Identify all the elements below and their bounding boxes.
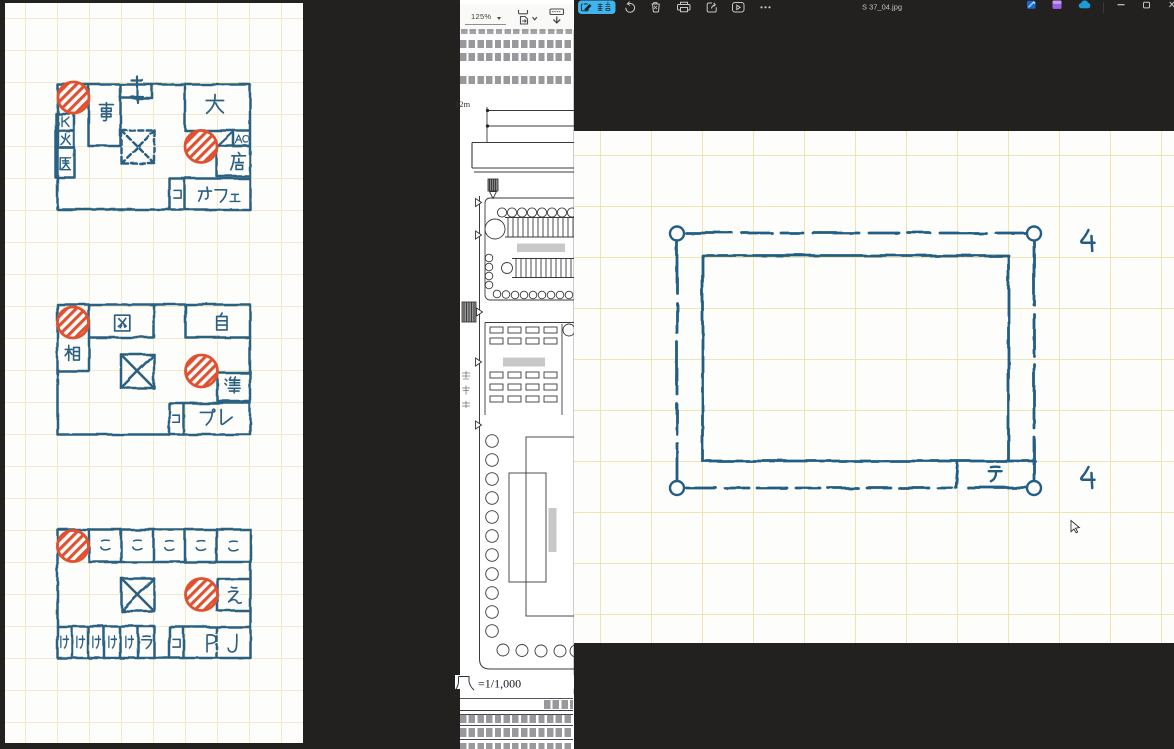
- svg-text:=1/1,000: =1/1,000: [478, 677, 521, 691]
- svg-text:S 37_04.jpg: S 37_04.jpg: [862, 3, 902, 12]
